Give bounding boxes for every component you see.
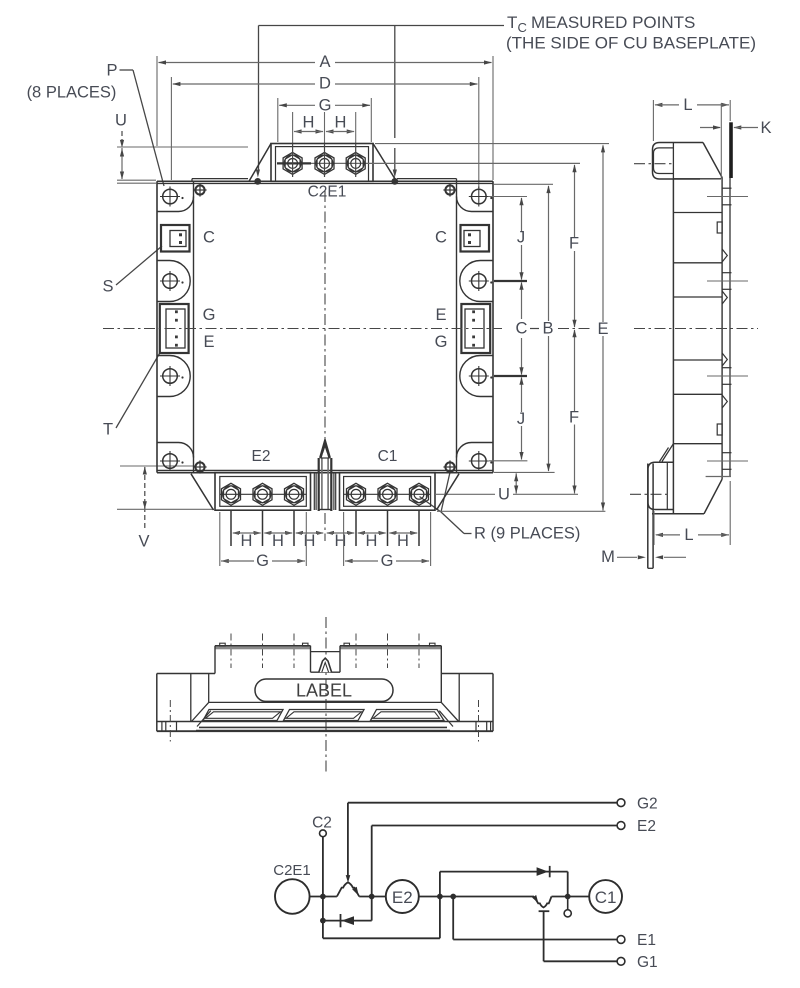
svg-text:G2: G2: [637, 796, 658, 813]
svg-text:E: E: [435, 306, 446, 324]
svg-text:H: H: [335, 532, 347, 550]
svg-text:J: J: [517, 410, 525, 428]
svg-text:G: G: [319, 96, 332, 114]
svg-text:H: H: [241, 532, 253, 550]
svg-text:U: U: [115, 112, 127, 130]
svg-text:L: L: [684, 526, 693, 544]
svg-text:(THE SIDE OF CU BASEPLATE): (THE SIDE OF CU BASEPLATE): [506, 34, 756, 53]
svg-text:C: C: [516, 320, 528, 338]
svg-text:H: H: [397, 532, 409, 550]
svg-text:F: F: [569, 235, 579, 253]
svg-text:C1: C1: [595, 888, 617, 907]
svg-text:H: H: [272, 532, 284, 550]
svg-text:C2: C2: [312, 815, 332, 832]
svg-text:L: L: [683, 96, 692, 114]
svg-text:K: K: [760, 119, 771, 137]
svg-text:H: H: [366, 532, 378, 550]
svg-text:E: E: [203, 333, 214, 351]
svg-text:G: G: [381, 552, 394, 570]
svg-text:C2E1: C2E1: [308, 184, 347, 201]
svg-text:C1: C1: [378, 448, 398, 465]
svg-text:B: B: [542, 320, 553, 338]
svg-text:C2E1: C2E1: [273, 862, 311, 879]
svg-text:C: C: [203, 229, 215, 247]
svg-text:G: G: [203, 306, 216, 324]
svg-text:E2: E2: [252, 448, 271, 465]
svg-text:T: T: [103, 421, 113, 439]
svg-text:M: M: [601, 548, 615, 566]
svg-text:E2: E2: [637, 818, 656, 835]
svg-text:(8 PLACES): (8 PLACES): [27, 84, 117, 102]
svg-text:A: A: [319, 53, 330, 71]
svg-text:D: D: [319, 75, 331, 93]
svg-text:E2: E2: [392, 888, 413, 907]
svg-text:S: S: [102, 278, 113, 296]
svg-text:E: E: [597, 320, 608, 338]
svg-text:P: P: [106, 62, 117, 80]
svg-text:G: G: [435, 333, 448, 351]
svg-text:V: V: [138, 533, 149, 551]
svg-text:H: H: [335, 114, 347, 132]
svg-text:F: F: [569, 409, 579, 427]
svg-text:H: H: [303, 114, 315, 132]
svg-text:LABEL: LABEL: [296, 681, 352, 701]
svg-text:MEASURED POINTS: MEASURED POINTS: [531, 13, 695, 32]
svg-text:R (9 PLACES): R (9 PLACES): [474, 525, 580, 543]
svg-text:U: U: [498, 485, 510, 503]
svg-text:G1: G1: [637, 954, 658, 971]
svg-text:J: J: [517, 229, 525, 247]
svg-text:G: G: [256, 552, 269, 570]
svg-text:T: T: [507, 13, 517, 32]
svg-text:H: H: [304, 532, 316, 550]
svg-text:E1: E1: [637, 932, 656, 949]
svg-text:C: C: [435, 229, 447, 247]
